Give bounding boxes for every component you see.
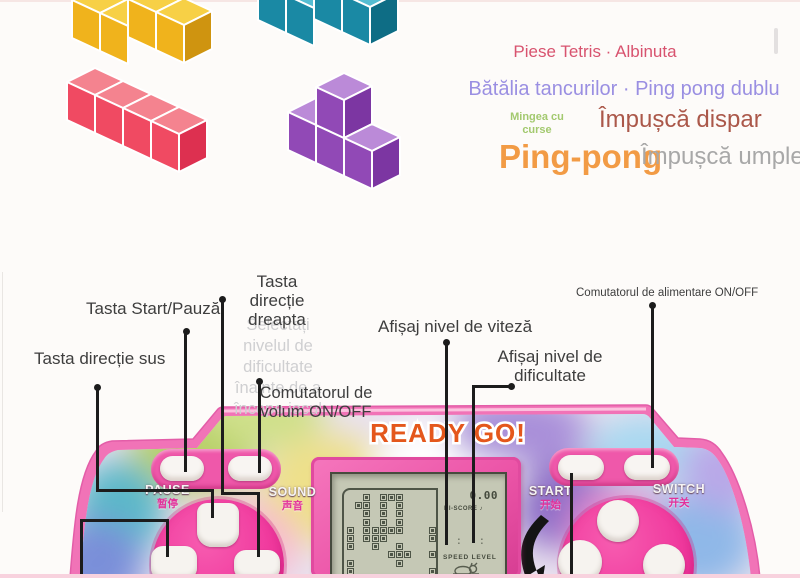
- lcd-block-cell: [380, 494, 387, 501]
- promo-impusca-umple: Împușcă umple: [641, 143, 800, 171]
- lcd-block-cell: [363, 494, 370, 501]
- callout-start-pause: Tasta Start/Pauză: [86, 299, 220, 319]
- lcd-block-cell: [396, 510, 403, 517]
- scrollbar-artifact: [774, 28, 778, 54]
- lcd-block-cell: [355, 502, 362, 509]
- callout-up-key: Tasta direcție sus: [34, 349, 165, 369]
- lcd-block-cell: [372, 527, 379, 534]
- callout-dot-speed: [443, 339, 450, 346]
- product-page-image: Piese Tetris · Albinuta Bătălia tancuril…: [0, 0, 800, 578]
- lcd-block-cell: [372, 535, 379, 542]
- lcd-block-cell: [380, 510, 387, 517]
- callout-line-up-key-v1: [96, 387, 99, 492]
- callout-line-right-key-h: [221, 492, 260, 495]
- callout-line-up-key-h: [96, 489, 214, 492]
- action-button-right[interactable]: [643, 544, 685, 578]
- tetromino-yellow: [72, 0, 212, 64]
- promo-impusca-dispar: Împușcă dispar: [599, 106, 762, 134]
- lcd-block-cell: [404, 551, 411, 558]
- lcd-level-display: :: [480, 535, 484, 547]
- callout-right-key: Tasta direcție dreapta: [227, 272, 327, 329]
- callout-line-difficulty-h: [472, 385, 512, 388]
- callout-line-power: [651, 305, 654, 468]
- lcd-speed-display: :: [457, 535, 461, 547]
- ready-go-text: READY GO!: [352, 418, 544, 449]
- start-button[interactable]: [558, 455, 604, 480]
- sound-label: SOUND: [265, 485, 320, 499]
- promo-ping-pong: Ping-pong: [499, 138, 662, 176]
- callout-line-right-key-v2: [257, 492, 260, 557]
- pause-button[interactable]: [160, 456, 204, 481]
- switch-label: SWITCH: [650, 482, 708, 496]
- callout-dot-up-key: [94, 384, 101, 391]
- callout-dot-power: [649, 302, 656, 309]
- lcd-speed-level-label: SPEED LEVEL: [443, 554, 497, 561]
- lcd-hi-score-label: HI-SCORE ♪: [444, 506, 483, 512]
- promo-badge-line2: curse: [505, 124, 569, 137]
- sound-label-zh: 声音: [265, 498, 320, 513]
- tetromino-pink: [67, 68, 207, 172]
- callout-power-switch: Comutatorul de alimentare ON/OFF: [576, 287, 758, 299]
- lcd-block-cell: [363, 510, 370, 517]
- dpad-up-button[interactable]: [197, 503, 239, 547]
- promo-subtitle: Bătălia tancurilor · Ping pong dublu: [468, 78, 780, 101]
- callout-line-difficulty-v: [472, 385, 475, 543]
- lcd-block-cell: [396, 502, 403, 509]
- callout-line-left-key-v2: [166, 519, 169, 557]
- lcd-block-cell: [380, 535, 387, 542]
- lcd-block-cell: [429, 535, 436, 542]
- lcd-block-cell: [363, 535, 370, 542]
- callout-line-start-pause: [184, 331, 187, 472]
- callout-line-right-key-v1: [221, 299, 224, 495]
- action-button-top[interactable]: [597, 500, 639, 542]
- promo-badge-line1: Mingea cu: [505, 111, 569, 124]
- callout-dot-start-pause: [183, 328, 190, 335]
- lcd-block-cell: [347, 535, 354, 542]
- pause-label-zh: 暂停: [140, 496, 195, 511]
- callout-speed-display: Afișaj nivel de viteză: [378, 317, 532, 337]
- lcd-block-cell: [347, 560, 354, 567]
- lcd-block-cell: [380, 527, 387, 534]
- lcd-block-cell: [347, 527, 354, 534]
- lcd-block-cell: [396, 560, 403, 567]
- lcd-block-cell: [380, 519, 387, 526]
- lcd-block-cell: [388, 527, 395, 534]
- tetromino-purple: [288, 73, 400, 189]
- lcd-block-cell: [388, 551, 395, 558]
- lcd-block-cell: [347, 543, 354, 550]
- lcd-block-cell: [388, 494, 395, 501]
- callout-line-left-key-v1: [80, 519, 83, 578]
- callout-difficulty-display: Afișaj nivel de dificultate: [470, 347, 630, 385]
- callout-line-start-pill: [570, 473, 573, 578]
- lcd-block-cell: [396, 527, 403, 534]
- bottom-strip: [0, 574, 800, 578]
- lcd-block-cell: [372, 543, 379, 550]
- callout-line-up-key-v2: [211, 489, 214, 518]
- lcd-block-cell: [429, 527, 436, 534]
- sound-button[interactable]: [228, 456, 272, 481]
- switch-label-zh: 开关: [650, 495, 708, 510]
- lcd-block-cell: [396, 519, 403, 526]
- lcd-block-cell: [380, 502, 387, 509]
- switch-button[interactable]: [624, 455, 670, 480]
- lcd-playfield: [342, 488, 438, 578]
- tetromino-teal: [258, 0, 398, 46]
- lcd-block-cell: [429, 551, 436, 558]
- action-button-left[interactable]: [558, 540, 602, 578]
- promo-title: Piese Tetris · Albinuta: [480, 42, 710, 62]
- promo-badge: Mingea cu curse: [505, 111, 569, 137]
- lcd-block-cell: [396, 551, 403, 558]
- lcd-block-cell: [363, 527, 370, 534]
- lcd-block-cell: [396, 543, 403, 550]
- lcd-block-cell: [363, 519, 370, 526]
- callout-line-speed: [445, 342, 448, 545]
- tetromino-pieces-illustration: [0, 0, 460, 200]
- lcd-block-cell: [396, 494, 403, 501]
- lcd-block-cell: [363, 502, 370, 509]
- callout-volume-switch: Comutatorul de volum ON/OFF: [236, 384, 396, 422]
- callout-line-left-key-h: [80, 519, 169, 522]
